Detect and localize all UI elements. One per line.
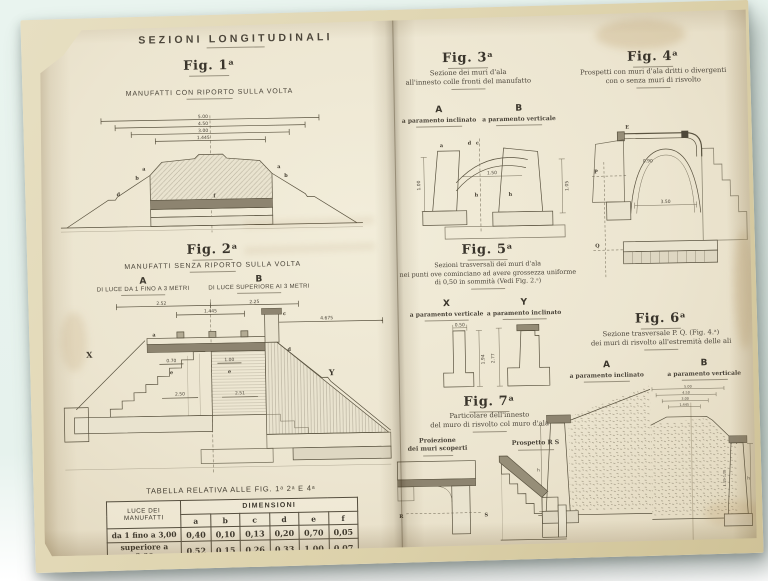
fig5-dim-label: 0.50 <box>455 322 465 328</box>
table-cell: 0,10 <box>211 526 241 541</box>
table-title-text: TABELLA RELATIVA ALLE FIG. 1ᵃ 2ᵃ E 4ᵃ <box>146 484 315 496</box>
fig6-dim-label: 4.50 <box>682 391 690 395</box>
fig3-dim-label: 1.00 <box>416 180 422 190</box>
fig1-caption-text: MANUFATTI CON RIPORTO SULLA VOLTA <box>126 88 294 98</box>
table-col: f <box>328 511 358 525</box>
fig6-caption-rule <box>644 349 678 351</box>
fig2-mark: a <box>152 332 156 338</box>
paper-sheet: SEZIONI LONGITUDINALI Fig. 1ᵃ MANUFATTI … <box>35 10 757 557</box>
fig3-col-a: A a paramento inclinato <box>399 104 479 127</box>
fig6-col-b-letter: B <box>656 357 751 369</box>
fig5-col-y-rule <box>502 318 546 320</box>
fig2-dim-label: 2.52 <box>156 301 166 307</box>
fig5-col-x: X a paramento verticale <box>406 298 486 321</box>
table-col: a <box>181 514 211 528</box>
fig6-col-a-caption: a paramento inclinato <box>562 371 652 380</box>
fig2-col-a-caption: DI LUCE DA 1 FINO A 3 METRI <box>92 286 194 294</box>
fig1-dimension-lines <box>101 114 319 145</box>
fig6-dim-label: 1.445 <box>679 403 689 407</box>
fig2-mark: e <box>228 369 231 375</box>
fig3-label-text: Fig. 3ᵃ <box>442 50 494 66</box>
ink-showthrough <box>243 201 375 264</box>
table-row-header: LUCE DEI MANUFATTI <box>106 500 181 528</box>
fig5-col-x-rule <box>425 320 469 322</box>
fig1-mark: b <box>284 173 288 179</box>
fig1-label-rule <box>189 75 229 77</box>
fig2-label-text: Fig. 2ᵃ <box>186 242 238 258</box>
fig4-mark-q: Q <box>595 243 600 249</box>
table-cell: 0,70 <box>299 525 329 540</box>
fig6-col-b-caption: a paramento verticale <box>657 369 752 378</box>
fig2-col-b: B DI LUCE SUPERIORE AI 3 METRI <box>205 274 313 295</box>
fig7-sub2: Prospetto R S <box>493 439 578 452</box>
fig3-dim-label: 1.05 <box>564 181 570 191</box>
section-title-rule <box>207 46 265 48</box>
fig7-label-text: Fig. 7ᵃ <box>463 394 515 410</box>
fig1-caption: MANUFATTI CON RIPORTO SULLA VOLTA <box>94 87 324 101</box>
fig1-label: Fig. 1ᵃ <box>109 57 309 79</box>
fig5-col-y: Y a paramento inclinato <box>481 297 566 321</box>
fig1-mark: d <box>117 192 121 198</box>
fig5-dim-label: 2.77 <box>490 353 496 363</box>
fig2-dim-label: 0.70 <box>166 358 176 364</box>
table-cell: 0,05 <box>328 524 358 539</box>
fig2-mark: c <box>283 311 286 317</box>
fig3-col-b-rule <box>496 124 542 126</box>
fig6-col-b-rule <box>681 379 727 381</box>
fig4-dim-label: 0.90 <box>643 158 653 164</box>
fig5-col-y-caption: a paramento inclinato <box>482 309 567 318</box>
fig7-sub1-line2: dei muri scoperti <box>395 444 480 454</box>
fig6-label-text: Fig. 6ᵃ <box>635 311 687 327</box>
fig2-caption-rule <box>190 271 236 273</box>
table-col: d <box>269 512 299 526</box>
table-col: b <box>210 513 240 527</box>
fig3-mark: h <box>509 192 513 198</box>
fig3-drawing: 1.00 1.05 1.50 a d c h h <box>409 128 591 245</box>
fig6-col-a-rule <box>584 381 630 383</box>
fig4-drawing: P Q E 0.90 3.50 <box>589 107 754 292</box>
scanned-document-scene: SEZIONI LONGITUDINALI Fig. 1ᵃ MANUFATTI … <box>0 0 768 581</box>
fig1-dim-label: 1.445 <box>197 135 210 141</box>
fig6-dim-label: 5.00 <box>684 385 692 389</box>
fig2-drawing: 2.52 2.25 1.445 4.675 0.70 1.00 2.50 2.5… <box>58 294 391 478</box>
fig5-caption: Sezioni trasversali dei muri d'ala nei p… <box>373 258 603 291</box>
fig3-col-a-rule <box>416 126 462 128</box>
fig5-col-y-letter: Y <box>481 297 566 309</box>
fig6-dim-label: h <box>747 476 750 482</box>
fig4-caption: Prospetti con muri d'ala dritti o diverg… <box>563 66 743 90</box>
fig1-label-text: Fig. 1ᵃ <box>183 58 235 74</box>
table-cell: 0,20 <box>269 525 299 540</box>
fig7-caption-rule <box>473 431 507 433</box>
fig4-dim-label: 3.50 <box>660 199 670 205</box>
fig1-mark: a <box>277 164 281 170</box>
fig3-mark: d <box>468 141 472 147</box>
table-cell: 0,13 <box>240 526 270 541</box>
fig1-mark: b <box>135 176 139 182</box>
fig7-sub2-text: Prospetto R S <box>493 439 578 449</box>
fig7-plan-drawing: R S <box>395 454 492 544</box>
fig1-dim-label: 5.00 <box>198 114 208 120</box>
fig6-col-a: A a paramento inclinato <box>561 359 651 383</box>
section-title-text: SEZIONI LONGITUDINALI <box>138 31 333 47</box>
fig6-col-a-letter: A <box>561 359 651 371</box>
fig6-drawing-b: 5.00 4.50 3.00 1.445 1.00–1.05 h <box>648 381 755 535</box>
table-cell: 0,40 <box>181 527 211 542</box>
fig1-mark: a <box>142 167 146 173</box>
fig2-col-b-rule <box>237 292 281 294</box>
fig5-col-x-caption: a paramento verticale <box>407 310 487 318</box>
foxing-stain <box>595 19 686 51</box>
fig6-caption: Sezione trasversale P. Q. (Fig. 4.ᵃ) dei… <box>566 327 756 351</box>
table-col: e <box>299 512 329 526</box>
fig2-col-a-rule <box>121 294 165 296</box>
fig6-dim-label: 3.00 <box>681 397 689 401</box>
fig2-mark-y: Y <box>328 367 335 377</box>
fig4-caption-rule <box>636 87 670 89</box>
fig7-caption: Particolare dell'innesto del muro di ris… <box>394 410 584 434</box>
fig2-dim-label: 2.25 <box>249 299 259 305</box>
fig3-caption-rule <box>451 88 485 90</box>
fig2-label-rule <box>193 259 233 261</box>
table-col: c <box>240 513 270 527</box>
fig3-col-b-caption: a paramento verticale <box>479 115 559 123</box>
fig6-col-b: B a paramento verticale <box>656 357 751 381</box>
fig2-caption: MANUFATTI SENZA RIPORTO SULLA VOLTA <box>95 260 331 274</box>
fig3-col-b: B a paramento verticale <box>479 103 559 126</box>
fig7-prospetto-drawing <box>495 451 579 544</box>
table-title: TABELLA RELATIVA ALLE FIG. 1ᵃ 2ᵃ E 4ᵃ <box>106 483 356 497</box>
fig2-dim-label: 2.50 <box>175 391 185 397</box>
fig4-mark-e: E <box>625 125 629 131</box>
fig5-col-x-letter: X <box>406 298 486 309</box>
fig1-dim-label: 4.50 <box>198 121 208 127</box>
fig6-dim-label: 1.00–1.05 <box>722 470 726 487</box>
fig1-caption-rule <box>187 98 233 100</box>
fig3-dim-lines <box>421 155 566 216</box>
fig2-mark: d <box>287 347 291 353</box>
fig7-mark-s: S <box>484 512 488 518</box>
fig2-mark-x: X <box>86 350 93 360</box>
fig3-mark: c <box>476 140 479 146</box>
fig3-col-a-caption: a paramento inclinato <box>399 116 479 124</box>
fig5-label-text: Fig. 5ᵃ <box>461 242 513 258</box>
table-row-label: da 1 fino a 3,00 <box>107 527 181 542</box>
fig5-dim-label: 1.94 <box>480 354 486 364</box>
section-title: SEZIONI LONGITUDINALI <box>123 31 347 50</box>
fig2-dim-label: 4.675 <box>320 315 333 321</box>
fig2-mark: e <box>170 370 173 376</box>
fig3-caption: Sezione dei muri d'ala all'innesto colle… <box>373 67 563 91</box>
fig3-dim-label: 1.50 <box>487 170 497 176</box>
fig2-col-a: A DI LUCE DA 1 FINO A 3 METRI <box>92 276 194 297</box>
fig3-col-b-letter: B <box>479 103 559 114</box>
fig4-label-text: Fig. 4ᵃ <box>627 49 679 65</box>
fig1-dim-label: 3.00 <box>198 128 208 134</box>
fig4-mark-p: P <box>594 169 598 175</box>
fig2-dim-label: 1.445 <box>204 308 217 314</box>
fig5-drawing: 0.50 1.94 2.77 <box>423 321 584 394</box>
fig3-mark: a <box>440 143 444 149</box>
fig2-col-b-caption: DI LUCE SUPERIORE AI 3 METRI <box>205 284 313 292</box>
fig3-mark: h <box>475 192 479 198</box>
fig3-col-a-letter: A <box>399 104 479 115</box>
fig5-caption-rule <box>471 288 505 290</box>
